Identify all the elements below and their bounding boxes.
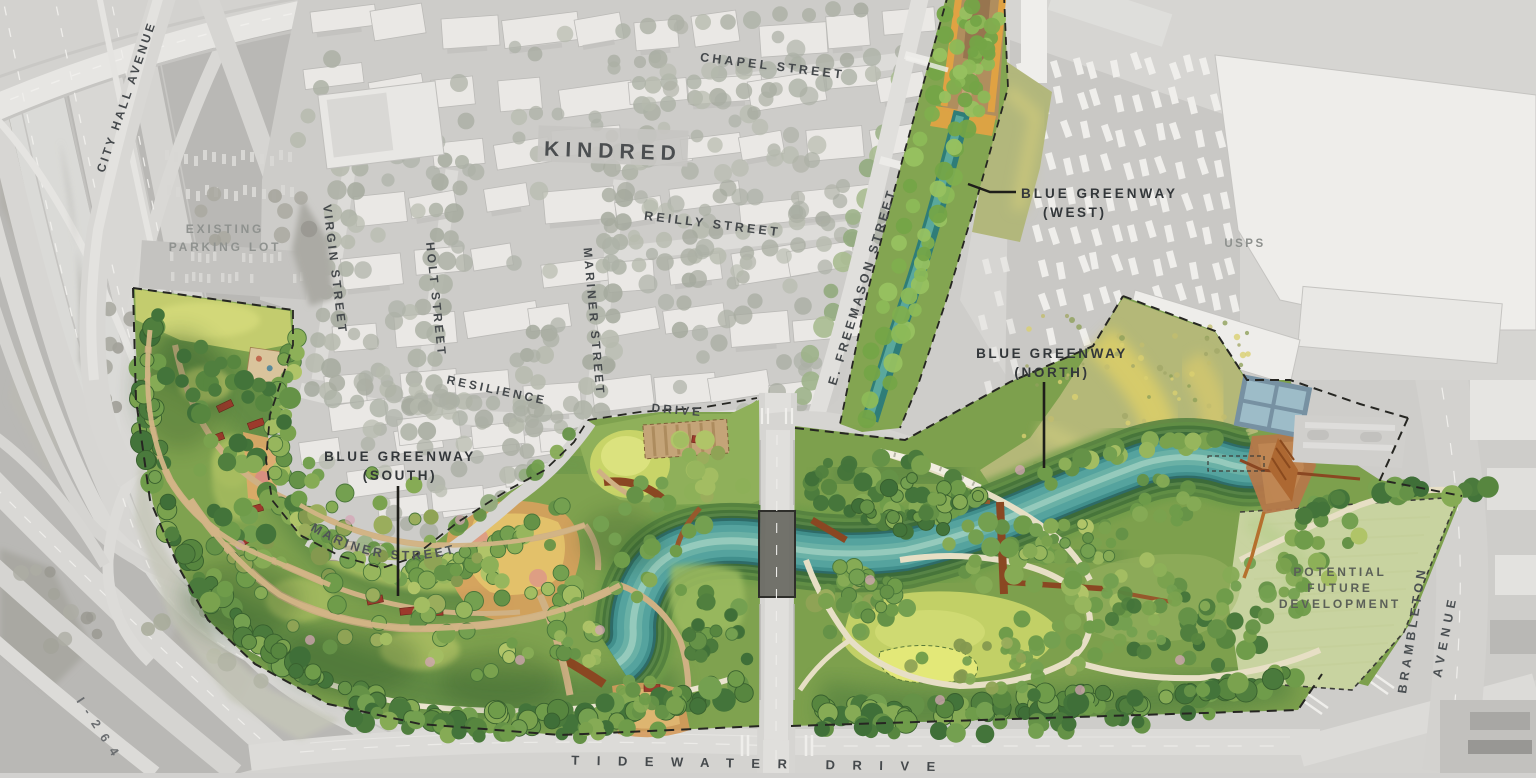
svg-text:(WEST): (WEST) <box>1043 205 1107 220</box>
svg-text:FUTURE: FUTURE <box>1307 581 1372 595</box>
svg-text:BLUE GREENWAY: BLUE GREENWAY <box>976 346 1128 361</box>
svg-text:(SOUTH): (SOUTH) <box>363 468 437 483</box>
svg-text:USPS: USPS <box>1224 238 1265 250</box>
svg-text:BLUE GREENWAY: BLUE GREENWAY <box>1021 186 1178 201</box>
svg-text:DEVELOPMENT: DEVELOPMENT <box>1279 597 1401 611</box>
svg-text:BLUE GREENWAY: BLUE GREENWAY <box>324 449 476 464</box>
svg-text:EXISTING: EXISTING <box>186 222 264 236</box>
svg-text:KINDRED: KINDRED <box>544 138 682 166</box>
svg-text:POTENTIAL: POTENTIAL <box>1293 565 1386 579</box>
svg-text:(NORTH): (NORTH) <box>1014 365 1089 380</box>
svg-text:PARKING LOT: PARKING LOT <box>169 240 282 254</box>
